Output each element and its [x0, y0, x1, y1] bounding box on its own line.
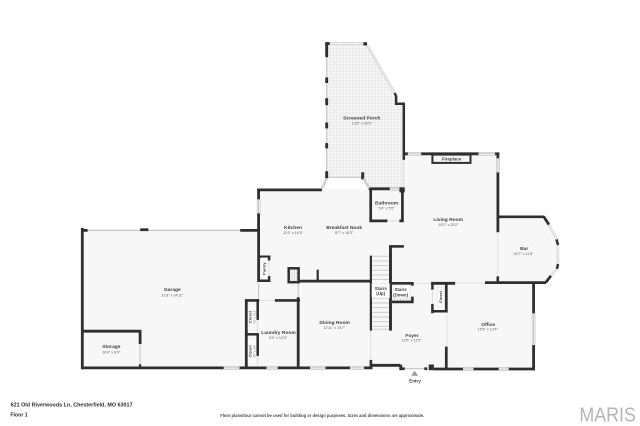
svg-text:MARIS: MARIS: [579, 404, 636, 426]
svg-text:Screened Porch: Screened Porch: [343, 115, 380, 121]
svg-text:Pantry: Pantry: [261, 262, 266, 275]
svg-text:Storage: Storage: [102, 344, 120, 350]
svg-text:13'8" x 26'3": 13'8" x 26'3": [352, 122, 373, 126]
svg-text:Stairs: Stairs: [394, 287, 407, 292]
svg-text:8'7" x 18'3": 8'7" x 18'3": [335, 231, 354, 235]
svg-text:(Down): (Down): [393, 293, 408, 298]
svg-text:Bathroom: Bathroom: [375, 201, 399, 207]
svg-text:15'5" x 13'4": 15'5" x 13'4": [478, 328, 499, 332]
svg-text:(Up): (Up): [376, 291, 385, 296]
svg-text:5'4" x 5'5": 5'4" x 5'5": [379, 207, 396, 211]
svg-text:Laundry Room: Laundry Room: [261, 330, 296, 336]
svg-text:19'2" x 23'2": 19'2" x 23'2": [438, 223, 459, 227]
svg-text:Breakfast Nook: Breakfast Nook: [326, 225, 362, 231]
svg-text:2'8" x 5'8": 2'8" x 5'8": [252, 345, 256, 358]
svg-text:6'9" x 12'6": 6'9" x 12'6": [269, 336, 288, 340]
svg-text:2'8" x 5'11": 2'8" x 5'11": [252, 310, 256, 324]
svg-text:16'7" x 11'8": 16'7" x 11'8": [513, 252, 534, 256]
svg-text:Kitchen: Kitchen: [284, 225, 302, 231]
svg-text:621 Old Riverwoods Ln, Chester: 621 Old Riverwoods Ln, Chesterfield, MO …: [11, 402, 133, 408]
svg-text:31'8" x 24'11": 31'8" x 24'11": [161, 294, 184, 298]
svg-text:11'6" x 16'4": 11'6" x 16'4": [283, 231, 304, 235]
svg-text:13'5" x 11'5": 13'5" x 11'5": [402, 339, 423, 343]
svg-text:Floor 1: Floor 1: [10, 412, 27, 418]
svg-text:Entry: Entry: [409, 378, 421, 383]
svg-text:Stairs: Stairs: [375, 286, 388, 291]
svg-text:Floor plans/tour cannot be use: Floor plans/tour cannot be used for buil…: [220, 413, 424, 418]
svg-text:Fireplace: Fireplace: [442, 156, 462, 161]
svg-text:10'4" x 6'6": 10'4" x 6'6": [102, 350, 121, 354]
svg-text:12'11" x 15'7": 12'11" x 15'7": [323, 326, 346, 330]
svg-text:Garage: Garage: [164, 287, 181, 293]
svg-text:Closet: Closet: [438, 290, 443, 303]
